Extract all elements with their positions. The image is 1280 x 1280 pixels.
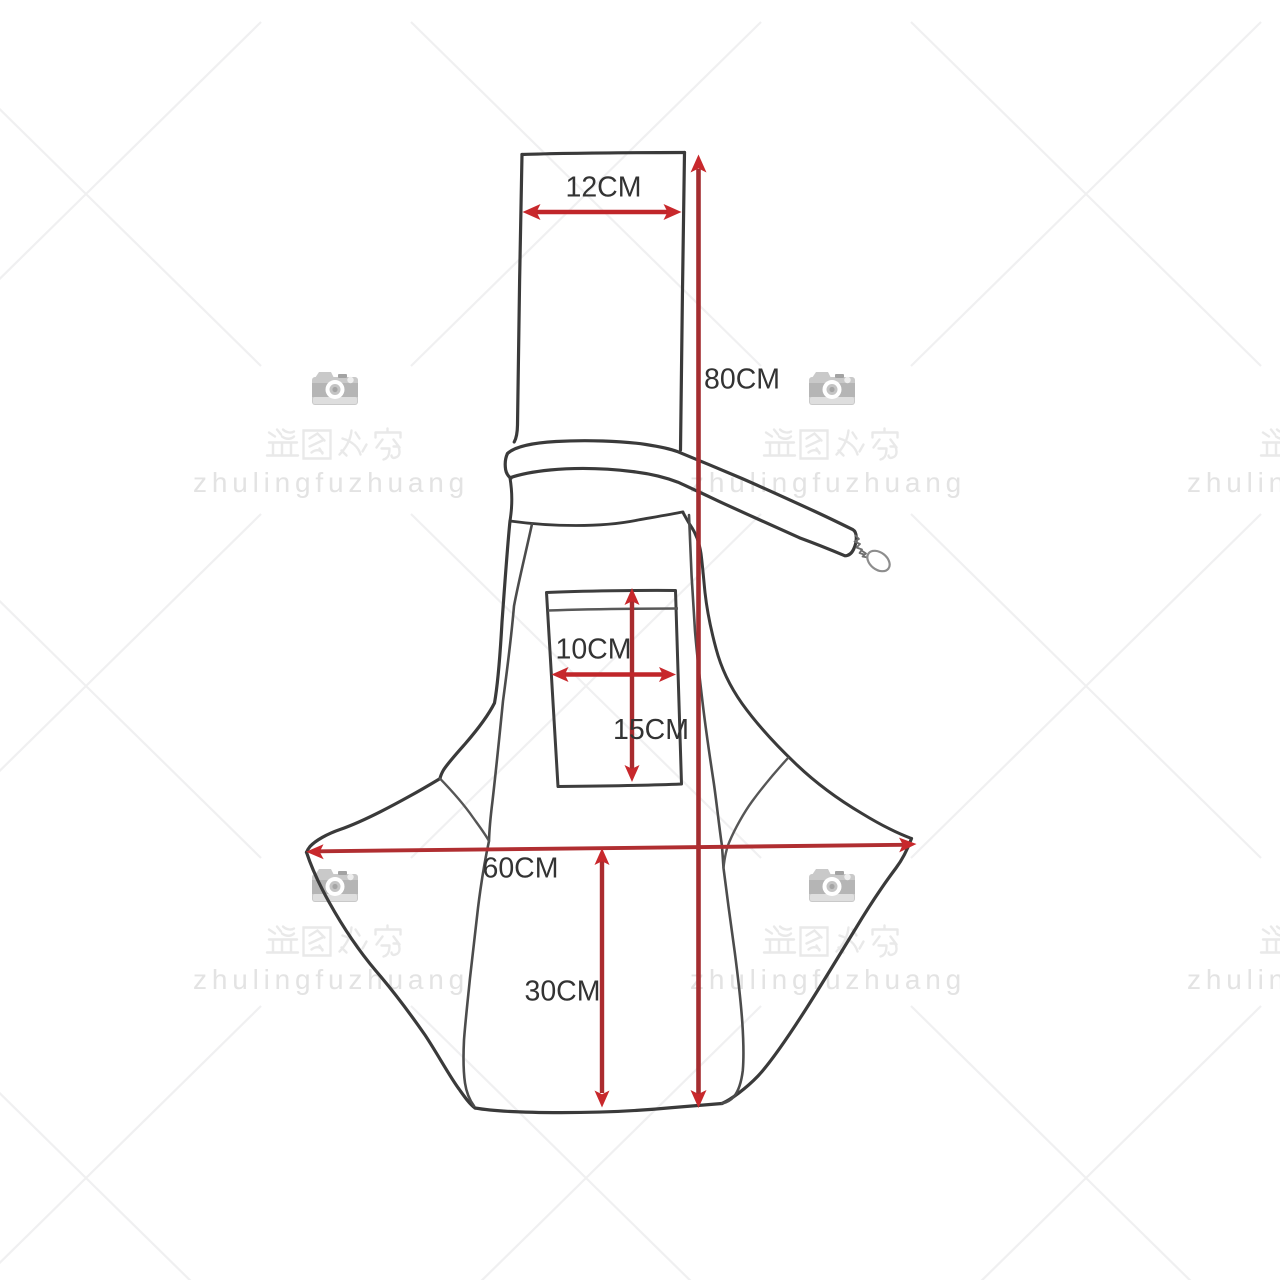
svg-text:30CM: 30CM (524, 976, 600, 1008)
svg-text:10CM: 10CM (555, 634, 631, 666)
svg-text:12CM: 12CM (565, 172, 641, 204)
svg-text:15CM: 15CM (613, 714, 689, 746)
svg-text:60CM: 60CM (482, 853, 558, 885)
svg-text:80CM: 80CM (704, 364, 780, 396)
